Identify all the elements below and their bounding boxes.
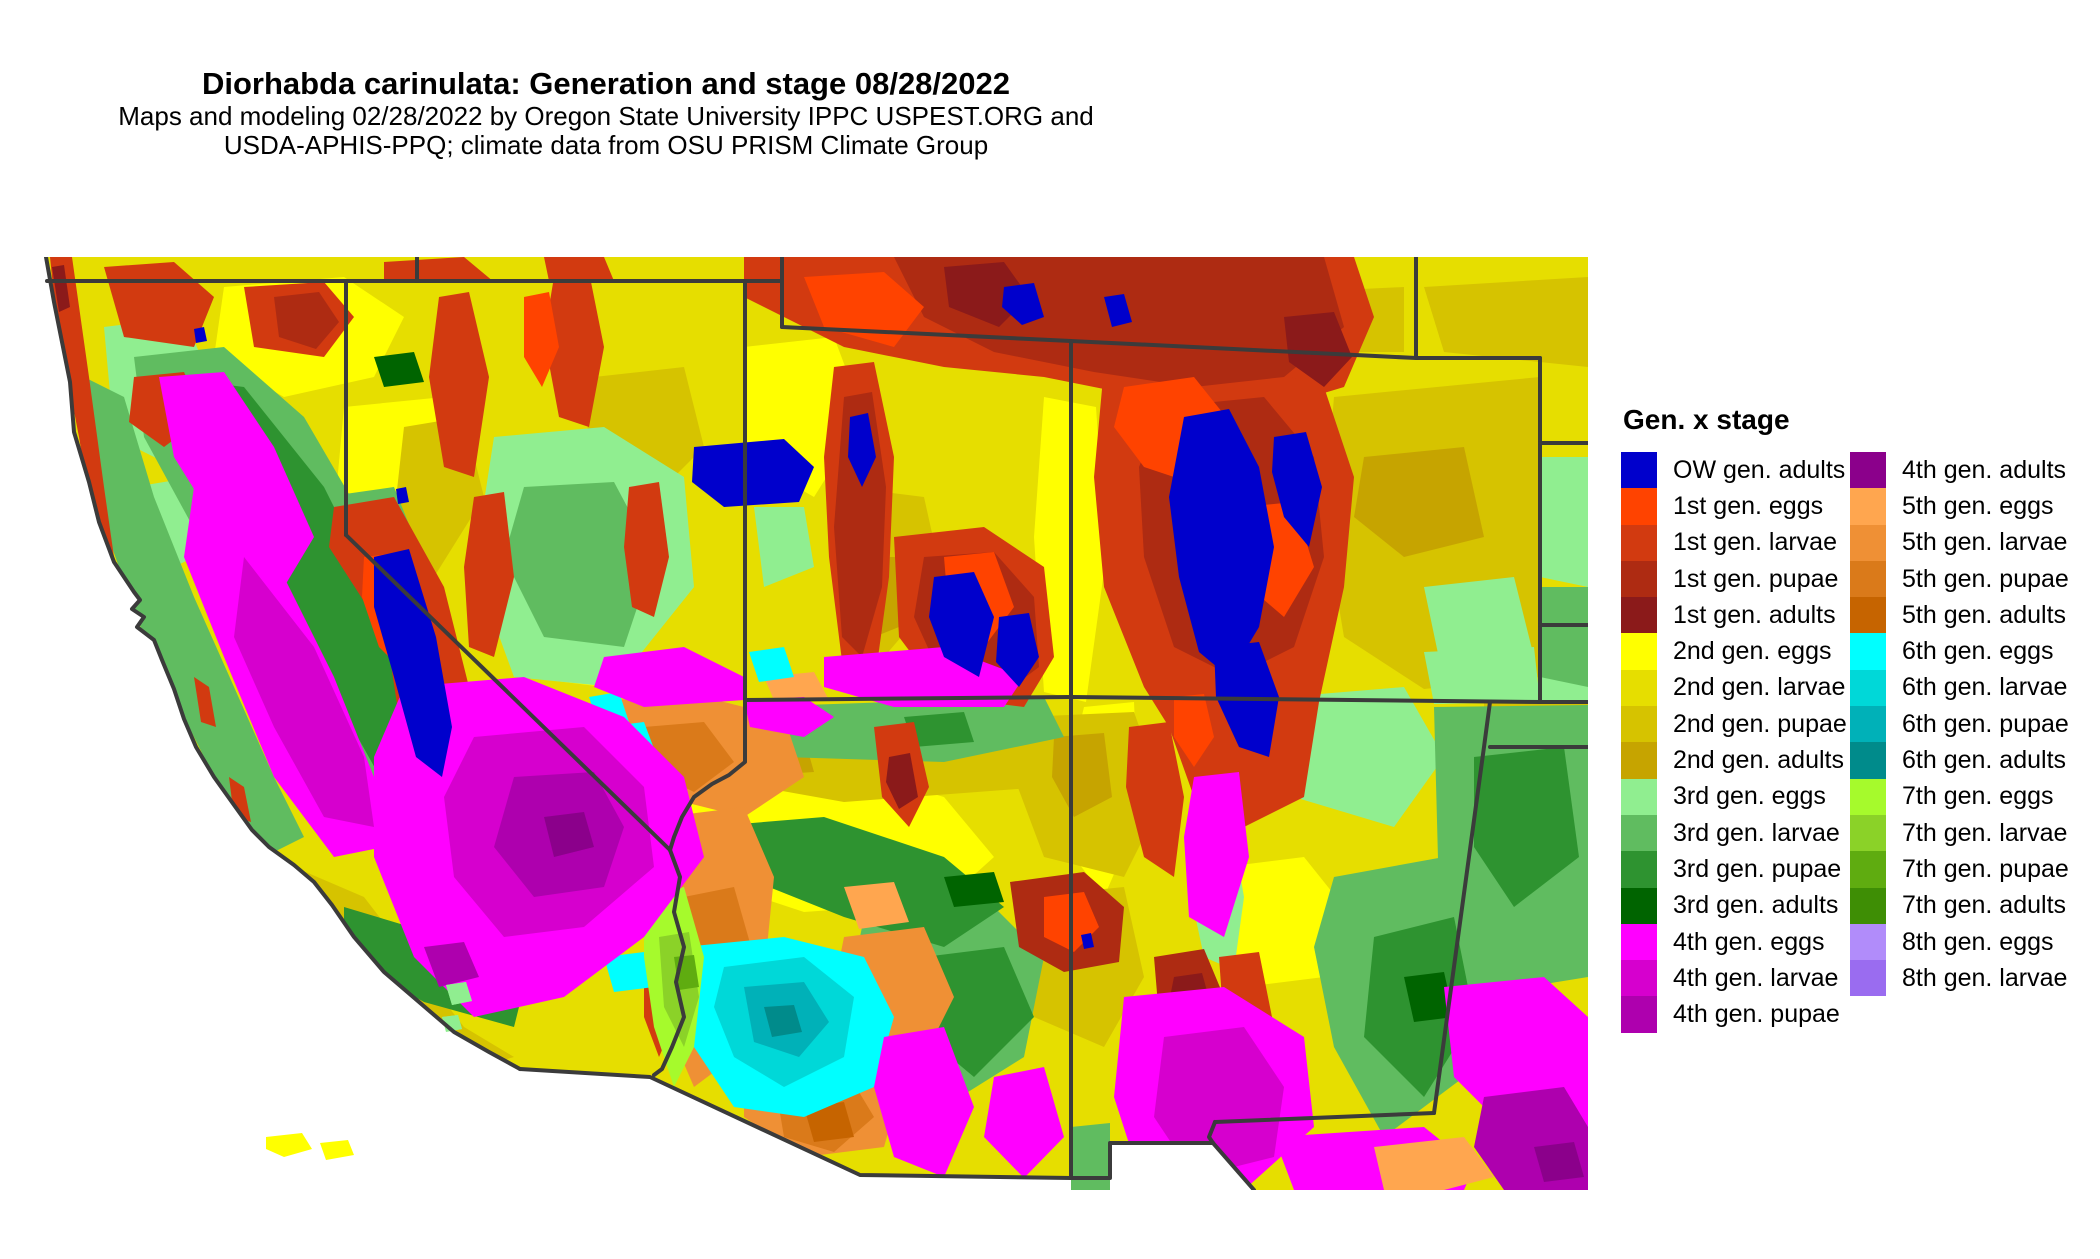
legend-swatch [1850,924,1886,960]
legend-swatch [1621,633,1657,669]
title-block: Diorhabda carinulata: Generation and sta… [0,66,1212,160]
legend-row: 5th gen. pupae [1850,561,2082,597]
legend-swatch [1621,960,1657,996]
legend-label: 2nd gen. pupae [1673,710,1847,739]
legend-row: 2nd gen. adults [1621,742,1850,778]
legend-swatch [1621,706,1657,742]
legend-swatch [1850,561,1886,597]
legend-swatch [1850,633,1886,669]
legend-label: 2nd gen. eggs [1673,637,1831,666]
map-region [944,872,1004,907]
legend-label: 4th gen. larvae [1673,964,1838,993]
legend-label: 2nd gen. larvae [1673,673,1845,702]
legend-row: 4th gen. pupae [1621,996,1850,1032]
legend-row: 4th gen. eggs [1621,924,1850,960]
legend-label: 1st gen. pupae [1673,565,1838,594]
legend-label: 6th gen. adults [1902,746,2066,775]
legend-label: 5th gen. pupae [1902,565,2069,594]
legend-label: 5th gen. eggs [1902,492,2054,521]
legend-label: 7th gen. larvae [1902,819,2067,848]
legend-label: 4th gen. adults [1902,456,2066,485]
legend-label: 3rd gen. eggs [1673,782,1826,811]
legend-row: 5th gen. eggs [1850,488,2082,524]
map-region [1540,457,1588,587]
legend-swatch [1621,597,1657,633]
legend-row: 2nd gen. eggs [1621,633,1850,669]
legend-label: 6th gen. eggs [1902,637,2054,666]
legend-swatch [1850,597,1886,633]
legend: Gen. x stage OW gen. adults 1st gen. egg… [1612,404,2082,1033]
legend-swatch [1850,960,1886,996]
legend-row: 7th gen. eggs [1850,779,2082,815]
legend-row: 1st gen. larvae [1621,525,1850,561]
legend-row: 7th gen. larvae [1850,815,2082,851]
map-subtitle-line2: USDA-APHIS-PPQ; climate data from OSU PR… [0,131,1212,160]
legend-swatch [1850,779,1886,815]
legend-swatch [1621,525,1657,561]
legend-row: OW gen. adults [1621,452,1850,488]
map-region [1540,587,1588,687]
legend-label: 6th gen. pupae [1902,710,2069,739]
legend-row: 8th gen. eggs [1850,924,2082,960]
legend-swatch [1621,815,1657,851]
legend-column-2: 4th gen. adults 5th gen. eggs 5th gen. l… [1850,452,2082,996]
legend-label: 7th gen. pupae [1902,855,2069,884]
legend-swatch [1621,742,1657,778]
legend-row: 5th gen. adults [1850,597,2082,633]
map-subtitle-line1: Maps and modeling 02/28/2022 by Oregon S… [0,102,1212,131]
legend-label: 7th gen. eggs [1902,782,2054,811]
legend-swatch [1621,996,1657,1032]
legend-label: 7th gen. adults [1902,891,2066,920]
legend-label: 4th gen. pupae [1673,1000,1840,1029]
legend-swatch [1621,670,1657,706]
legend-row: 1st gen. eggs [1621,488,1850,524]
legend-label: 5th gen. larvae [1902,528,2067,557]
legend-swatch [1850,815,1886,851]
legend-swatch [1621,851,1657,887]
legend-swatch [1850,488,1886,524]
legend-column-1: OW gen. adults 1st gen. eggs 1st gen. la… [1621,452,1850,1033]
legend-row: 7th gen. pupae [1850,851,2082,887]
phenology-map [44,257,1588,1190]
legend-swatch [1850,525,1886,561]
legend-label: 4th gen. eggs [1673,928,1825,957]
legend-swatch [1850,452,1886,488]
legend-label: 2nd gen. adults [1673,746,1844,775]
legend-swatch [1621,488,1657,524]
map-title: Diorhabda carinulata: Generation and sta… [0,66,1212,102]
legend-label: 8th gen. larvae [1902,964,2067,993]
legend-row: 7th gen. adults [1850,888,2082,924]
legend-swatch [1621,924,1657,960]
legend-columns: OW gen. adults 1st gen. eggs 1st gen. la… [1612,452,2082,1033]
legend-label: 6th gen. larvae [1902,673,2067,702]
legend-label: 8th gen. eggs [1902,928,2054,957]
legend-swatch [1621,561,1657,597]
legend-swatch [1850,851,1886,887]
legend-swatch [1621,779,1657,815]
legend-swatch [1850,670,1886,706]
legend-row: 3rd gen. larvae [1621,815,1850,851]
legend-swatch [1850,706,1886,742]
legend-row: 6th gen. eggs [1850,633,2082,669]
legend-row: 1st gen. adults [1621,597,1850,633]
legend-row: 6th gen. larvae [1850,670,2082,706]
legend-row: 1st gen. pupae [1621,561,1850,597]
legend-label: 3rd gen. adults [1673,891,1838,920]
page: Diorhabda carinulata: Generation and sta… [0,0,2100,1259]
map-region [1424,647,1540,704]
legend-row: 6th gen. pupae [1850,706,2082,742]
legend-label: 5th gen. adults [1902,601,2066,630]
legend-label: OW gen. adults [1673,456,1845,485]
legend-row: 4th gen. adults [1850,452,2082,488]
legend-row: 6th gen. adults [1850,742,2082,778]
legend-label: 3rd gen. pupae [1673,855,1841,884]
legend-row: 4th gen. larvae [1621,960,1850,996]
legend-label: 3rd gen. larvae [1673,819,1840,848]
legend-row: 2nd gen. pupae [1621,706,1850,742]
legend-swatch [1621,452,1657,488]
legend-label: 1st gen. larvae [1673,528,1837,557]
legend-swatch [1850,888,1886,924]
legend-row: 3rd gen. eggs [1621,779,1850,815]
legend-label: 1st gen. eggs [1673,492,1823,521]
legend-title: Gen. x stage [1623,404,2082,436]
legend-label: 1st gen. adults [1673,601,1836,630]
legend-row: 3rd gen. pupae [1621,851,1850,887]
legend-row: 5th gen. larvae [1850,525,2082,561]
legend-row: 3rd gen. adults [1621,888,1850,924]
legend-row: 2nd gen. larvae [1621,670,1850,706]
legend-swatch [1621,888,1657,924]
legend-swatch [1850,742,1886,778]
legend-row: 8th gen. larvae [1850,960,2082,996]
